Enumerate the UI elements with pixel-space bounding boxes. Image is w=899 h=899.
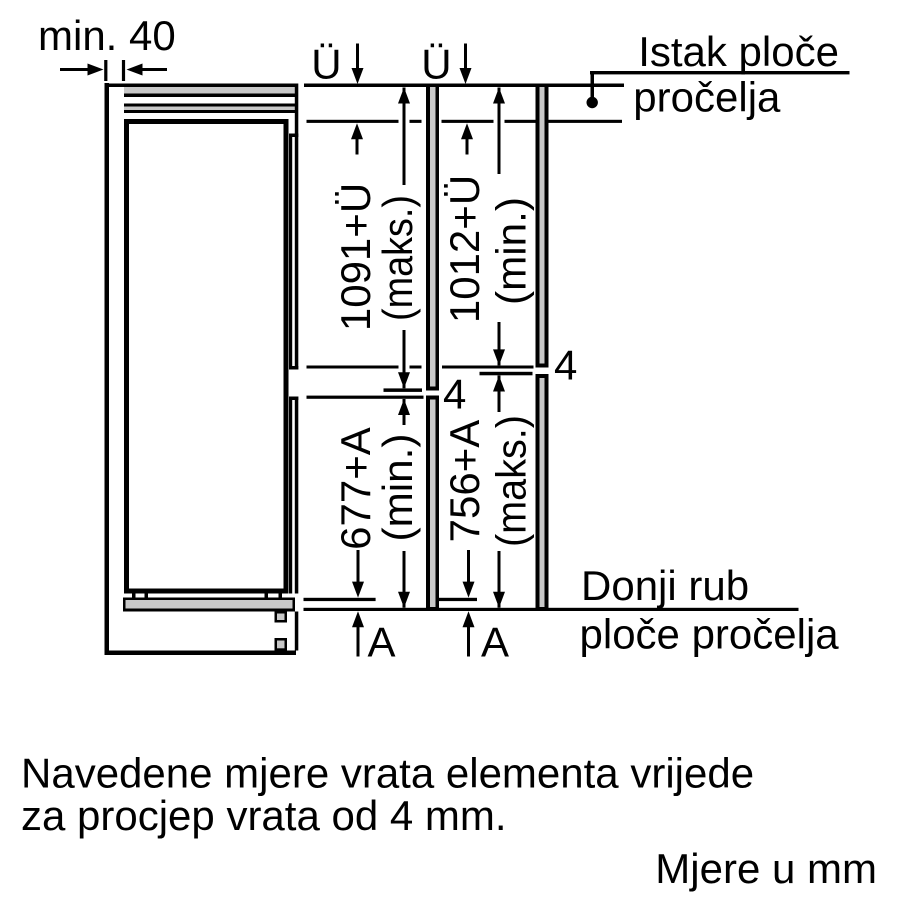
svg-text:Ü: Ü	[311, 41, 341, 88]
svg-text:pročelja: pročelja	[633, 74, 781, 121]
svg-text:(min.): (min.)	[488, 197, 535, 305]
svg-text:min. 40: min. 40	[38, 12, 176, 59]
svg-text:ploče pročelja: ploče pročelja	[580, 611, 840, 658]
svg-text:Navedene mjere vrata elementa: Navedene mjere vrata elementa vrijede	[21, 750, 754, 797]
svg-text:Istak ploče: Istak ploče	[638, 28, 839, 75]
svg-text:1012+Ü: 1012+Ü	[441, 175, 488, 323]
svg-text:4: 4	[554, 342, 577, 389]
svg-text:1091+Ü: 1091+Ü	[332, 183, 379, 331]
svg-text:4: 4	[443, 370, 466, 417]
svg-text:756+A: 756+A	[441, 420, 488, 543]
svg-text:A: A	[368, 619, 396, 666]
svg-text:Mjere u mm: Mjere u mm	[655, 845, 877, 892]
svg-text:za procjep vrata od 4 mm.: za procjep vrata od 4 mm.	[21, 792, 507, 839]
svg-text:Ü: Ü	[421, 41, 451, 88]
svg-text:Donji rub: Donji rub	[581, 562, 749, 609]
svg-text:A: A	[481, 619, 509, 666]
svg-text:(maks.): (maks.)	[488, 415, 535, 547]
svg-text:(maks.): (maks.)	[374, 195, 421, 321]
svg-text:677+A: 677+A	[332, 427, 379, 550]
svg-text:(min.): (min.)	[374, 434, 421, 542]
